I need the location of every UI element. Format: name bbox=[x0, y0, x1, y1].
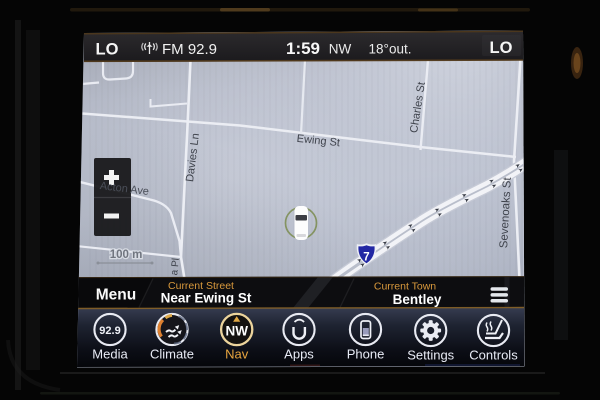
svg-text:1:59: 1:59 bbox=[286, 39, 320, 58]
svg-text:Settings: Settings bbox=[407, 348, 454, 363]
svg-text:Climate: Climate bbox=[150, 347, 194, 362]
svg-text:92.9: 92.9 bbox=[99, 325, 120, 337]
svg-text:LO: LO bbox=[490, 39, 513, 57]
svg-text:Media: Media bbox=[92, 347, 128, 362]
svg-text:LO: LO bbox=[96, 41, 119, 59]
svg-text:Near Ewing St: Near Ewing St bbox=[161, 291, 252, 306]
svg-text:FM 92.9: FM 92.9 bbox=[162, 41, 217, 58]
svg-text:NW: NW bbox=[225, 324, 248, 339]
svg-text:Apps: Apps bbox=[284, 347, 314, 362]
svg-text:100 m: 100 m bbox=[110, 249, 143, 261]
svg-text:Phone: Phone bbox=[347, 347, 385, 362]
svg-text:7: 7 bbox=[363, 252, 369, 264]
svg-text:Nav: Nav bbox=[225, 347, 249, 362]
svg-text:a Pl: a Pl bbox=[169, 258, 182, 276]
svg-text:NW: NW bbox=[329, 42, 352, 57]
svg-text:18°out.: 18°out. bbox=[369, 42, 412, 57]
svg-text:Menu: Menu bbox=[96, 286, 136, 303]
svg-text:Controls: Controls bbox=[469, 348, 518, 363]
svg-text:Current Town: Current Town bbox=[374, 281, 436, 293]
svg-text:Bentley: Bentley bbox=[393, 292, 442, 307]
